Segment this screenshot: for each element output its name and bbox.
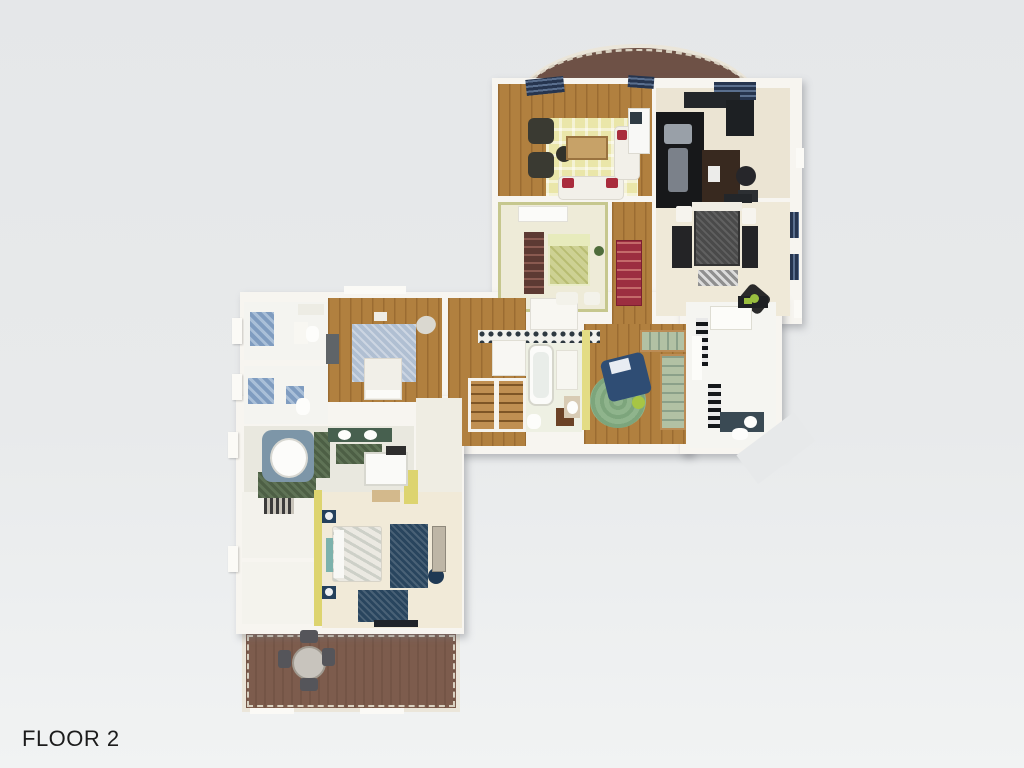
armchair-2: [528, 152, 554, 178]
left-bath-vanity: [298, 304, 324, 315]
window-bump-deck-1: [250, 708, 294, 714]
blue-tile-shower-2: [248, 378, 274, 404]
master-bath-sink-2: [364, 430, 377, 440]
window-right-glass-1: [790, 212, 799, 238]
green-bedroom-plant: [594, 246, 604, 256]
window-bump-right-1: [796, 148, 804, 168]
right-bath-shelf: [692, 336, 702, 380]
left-bath-toilet-2: [296, 398, 310, 415]
main-staircase-rail: [494, 378, 499, 432]
master-bath-shower-head: [386, 446, 406, 455]
hall-red-runner-rug: [616, 240, 642, 306]
master-navy-rug-right: [390, 524, 428, 588]
master-navy-rug-bottom: [358, 590, 408, 622]
center-bath-sink: [567, 401, 578, 414]
window-bump-top-1: [344, 286, 406, 294]
window-bump-left-4: [228, 546, 238, 572]
center-bath-toilet: [527, 414, 541, 429]
master-bath-sink-1: [338, 430, 351, 440]
master-bed-teal-bench: [326, 538, 333, 572]
master-dresser: [432, 526, 446, 572]
middle-bedroom-dresser: [326, 334, 339, 364]
center-bath-tub-inner: [533, 352, 549, 398]
left-bath-toilet-1: [306, 326, 319, 342]
bay-window-top-2: [628, 75, 655, 89]
gym-equipment-1: [664, 124, 692, 144]
green-staircase-top-run: [640, 330, 686, 352]
dark-bedroom-rug-left: [672, 226, 692, 268]
master-luggage-bench: [372, 490, 400, 502]
middle-bedroom-side-table: [374, 312, 387, 321]
green-bedroom-pillows: [548, 234, 590, 246]
office-chair: [736, 166, 756, 186]
yellow-accent-wall-1: [314, 490, 322, 626]
green-bedroom-chair-1: [556, 292, 578, 305]
master-bath-shower: [364, 452, 408, 486]
yellow-accent-wall-3: [582, 330, 590, 430]
dark-case-green-detail: [744, 298, 752, 304]
right-bath-toilet: [732, 428, 748, 440]
armchair-1: [528, 118, 554, 144]
dark-bedroom-nightstand-2: [742, 208, 756, 224]
window-bump-left-2: [232, 374, 242, 400]
dark-bedroom-pillow-band: [692, 202, 742, 211]
green-bedroom-runner-rug: [524, 232, 544, 294]
master-nightstand-2-top: [325, 588, 333, 596]
dark-bedroom-foot-rug: [698, 270, 738, 286]
deck-chair-right: [322, 648, 335, 666]
blue-tile-shower-1: [250, 312, 274, 346]
sitting-room-pouf: [632, 396, 645, 409]
gym-equipment-2: [668, 148, 688, 192]
window-bump-left-1: [232, 318, 242, 344]
floorplan-image: FLOOR 2: [0, 0, 1024, 768]
floor-label: FLOOR 2: [22, 726, 120, 752]
master-nightstand-1-top: [325, 512, 333, 520]
window-bump-deck-2: [360, 708, 404, 714]
green-bedroom-chair-2: [584, 292, 600, 305]
master-wall-tv: [374, 620, 418, 627]
floor-hall-lower: [416, 398, 462, 492]
center-bath-closet: [492, 340, 526, 376]
window-bump-left-3: [228, 432, 238, 458]
green-bedroom-dressers: [518, 206, 568, 222]
closet-rack: [264, 498, 294, 514]
rear-deck: [242, 630, 460, 712]
right-bath-closet: [710, 306, 752, 330]
master-bath-tub: [270, 438, 308, 478]
deck-chair-left: [278, 650, 291, 668]
floor-storage: [242, 562, 318, 624]
dark-bedroom-bed: [694, 206, 740, 266]
window-right-glass-2: [790, 254, 799, 280]
office-tall-cabinet: [726, 100, 754, 136]
coffee-table: [566, 136, 608, 160]
dark-bedroom-nightstand-1: [676, 206, 692, 222]
deck-table: [292, 646, 326, 680]
dark-bedroom-rug-right: [742, 226, 758, 268]
green-staircase-side-run: [660, 354, 686, 430]
wet-bar-appliance: [630, 112, 642, 124]
loveseat-red-pillow: [617, 130, 627, 140]
middle-bedroom-pillows: [366, 390, 400, 398]
deck-chair-top: [300, 630, 318, 643]
window-bump-right-2: [794, 300, 802, 318]
sofa-red-pillow-1: [562, 178, 574, 188]
sofa-red-pillow-2: [606, 178, 618, 188]
deck-chair-bottom: [300, 678, 318, 691]
master-bed-pillows: [334, 530, 344, 578]
right-bath-sink: [744, 416, 757, 428]
desk-papers: [708, 166, 720, 182]
center-bath-linen-closet: [556, 350, 578, 390]
